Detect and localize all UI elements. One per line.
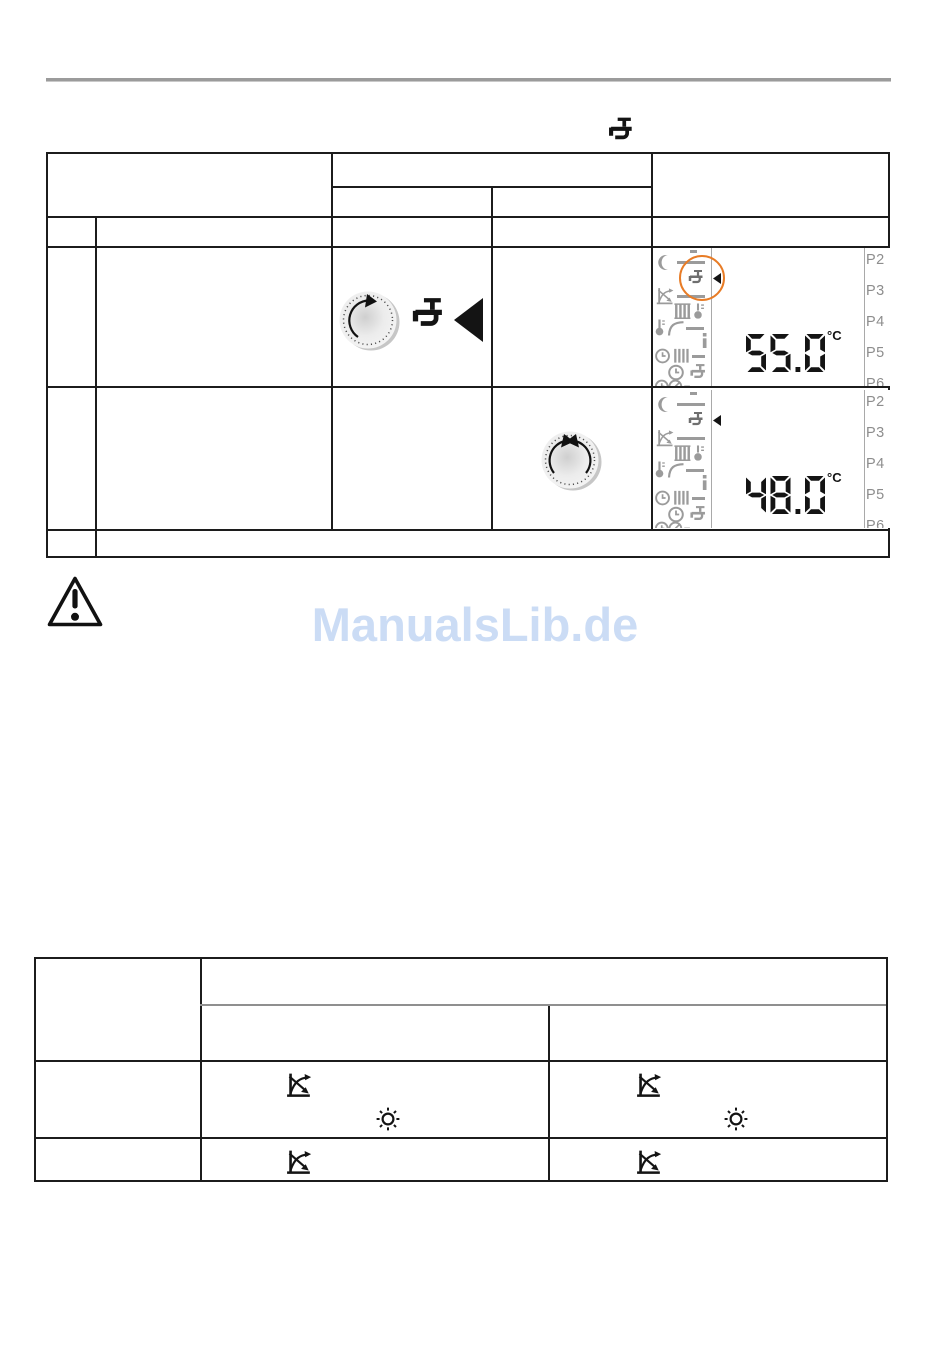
sun-icon xyxy=(375,1106,401,1132)
temperature-unit: °C xyxy=(827,470,842,485)
rotary-knob-clockwise xyxy=(334,286,402,354)
temperature-value xyxy=(746,476,826,514)
table-gridline xyxy=(200,959,202,1180)
lcd-separator xyxy=(711,390,712,528)
table-gridline xyxy=(200,1004,886,1006)
heating-curve-off-icon xyxy=(636,1072,662,1098)
program-label: P5 xyxy=(866,487,890,503)
program-label: P6 xyxy=(866,376,890,386)
heating-curve-off-icon xyxy=(636,1149,662,1175)
sun-icon xyxy=(723,1106,749,1132)
operation-steps-table: P2 P3 P4 P5 P6 °C xyxy=(46,152,890,558)
table-gridline xyxy=(48,386,888,388)
faucet-icon xyxy=(683,411,706,428)
program-label: P4 xyxy=(866,456,890,472)
table-gridline xyxy=(48,529,888,531)
heating-curve-off-icon xyxy=(656,287,674,305)
program-label: P2 xyxy=(866,252,890,268)
program-label: P2 xyxy=(866,394,890,410)
lcd-display-1: P2 P3 P4 P5 P6 °C xyxy=(654,248,890,386)
section-divider xyxy=(46,78,891,82)
moon-icon xyxy=(656,396,674,413)
heating-curve-off-icon xyxy=(656,429,674,447)
info-icon xyxy=(700,333,709,348)
program-label: P4 xyxy=(866,314,890,330)
table-gridline xyxy=(491,186,493,529)
program-label: P3 xyxy=(866,283,890,299)
table-gridline xyxy=(331,154,333,529)
menu-dash xyxy=(692,497,705,500)
heating-curve-off-icon xyxy=(286,1072,312,1098)
menu-dash xyxy=(686,469,704,472)
table-gridline xyxy=(331,186,652,188)
watermark: ManualsLib.de xyxy=(0,597,950,652)
lcd-tick xyxy=(690,392,697,395)
lcd-display-2: P2 P3 P4 P5 P6 °C xyxy=(654,390,890,528)
menu-dash xyxy=(677,437,705,440)
menu-dash xyxy=(692,355,705,358)
table-gridline xyxy=(651,154,653,529)
settings-table xyxy=(34,957,888,1182)
rotary-knob-both-directions xyxy=(536,426,604,494)
clock-gauge-icon xyxy=(655,379,691,386)
program-label: P3 xyxy=(866,425,890,441)
menu-dash xyxy=(686,327,704,330)
lcd-tick xyxy=(690,250,697,253)
temperature-value xyxy=(746,334,826,372)
highlight-circle xyxy=(679,255,725,301)
manual-page: P2 P3 P4 P5 P6 °C xyxy=(0,0,950,1362)
temperature-unit: °C xyxy=(827,328,842,343)
big-left-arrow-icon xyxy=(452,298,484,342)
program-label: P6 xyxy=(866,518,890,528)
selection-marker-icon xyxy=(713,415,721,426)
program-label: P5 xyxy=(866,345,890,361)
info-icon xyxy=(700,475,709,490)
table-gridline xyxy=(48,216,888,218)
heating-curve-off-icon xyxy=(286,1149,312,1175)
table-gridline xyxy=(36,1060,886,1062)
faucet-icon xyxy=(602,116,635,144)
table-gridline xyxy=(36,1137,886,1139)
room-temperature-icon xyxy=(655,460,685,478)
room-temperature-icon xyxy=(655,318,685,336)
table-gridline xyxy=(548,1005,550,1180)
menu-dash xyxy=(677,403,705,406)
moon-icon xyxy=(656,254,674,271)
clock-gauge-icon xyxy=(655,521,691,528)
faucet-icon xyxy=(406,296,444,332)
